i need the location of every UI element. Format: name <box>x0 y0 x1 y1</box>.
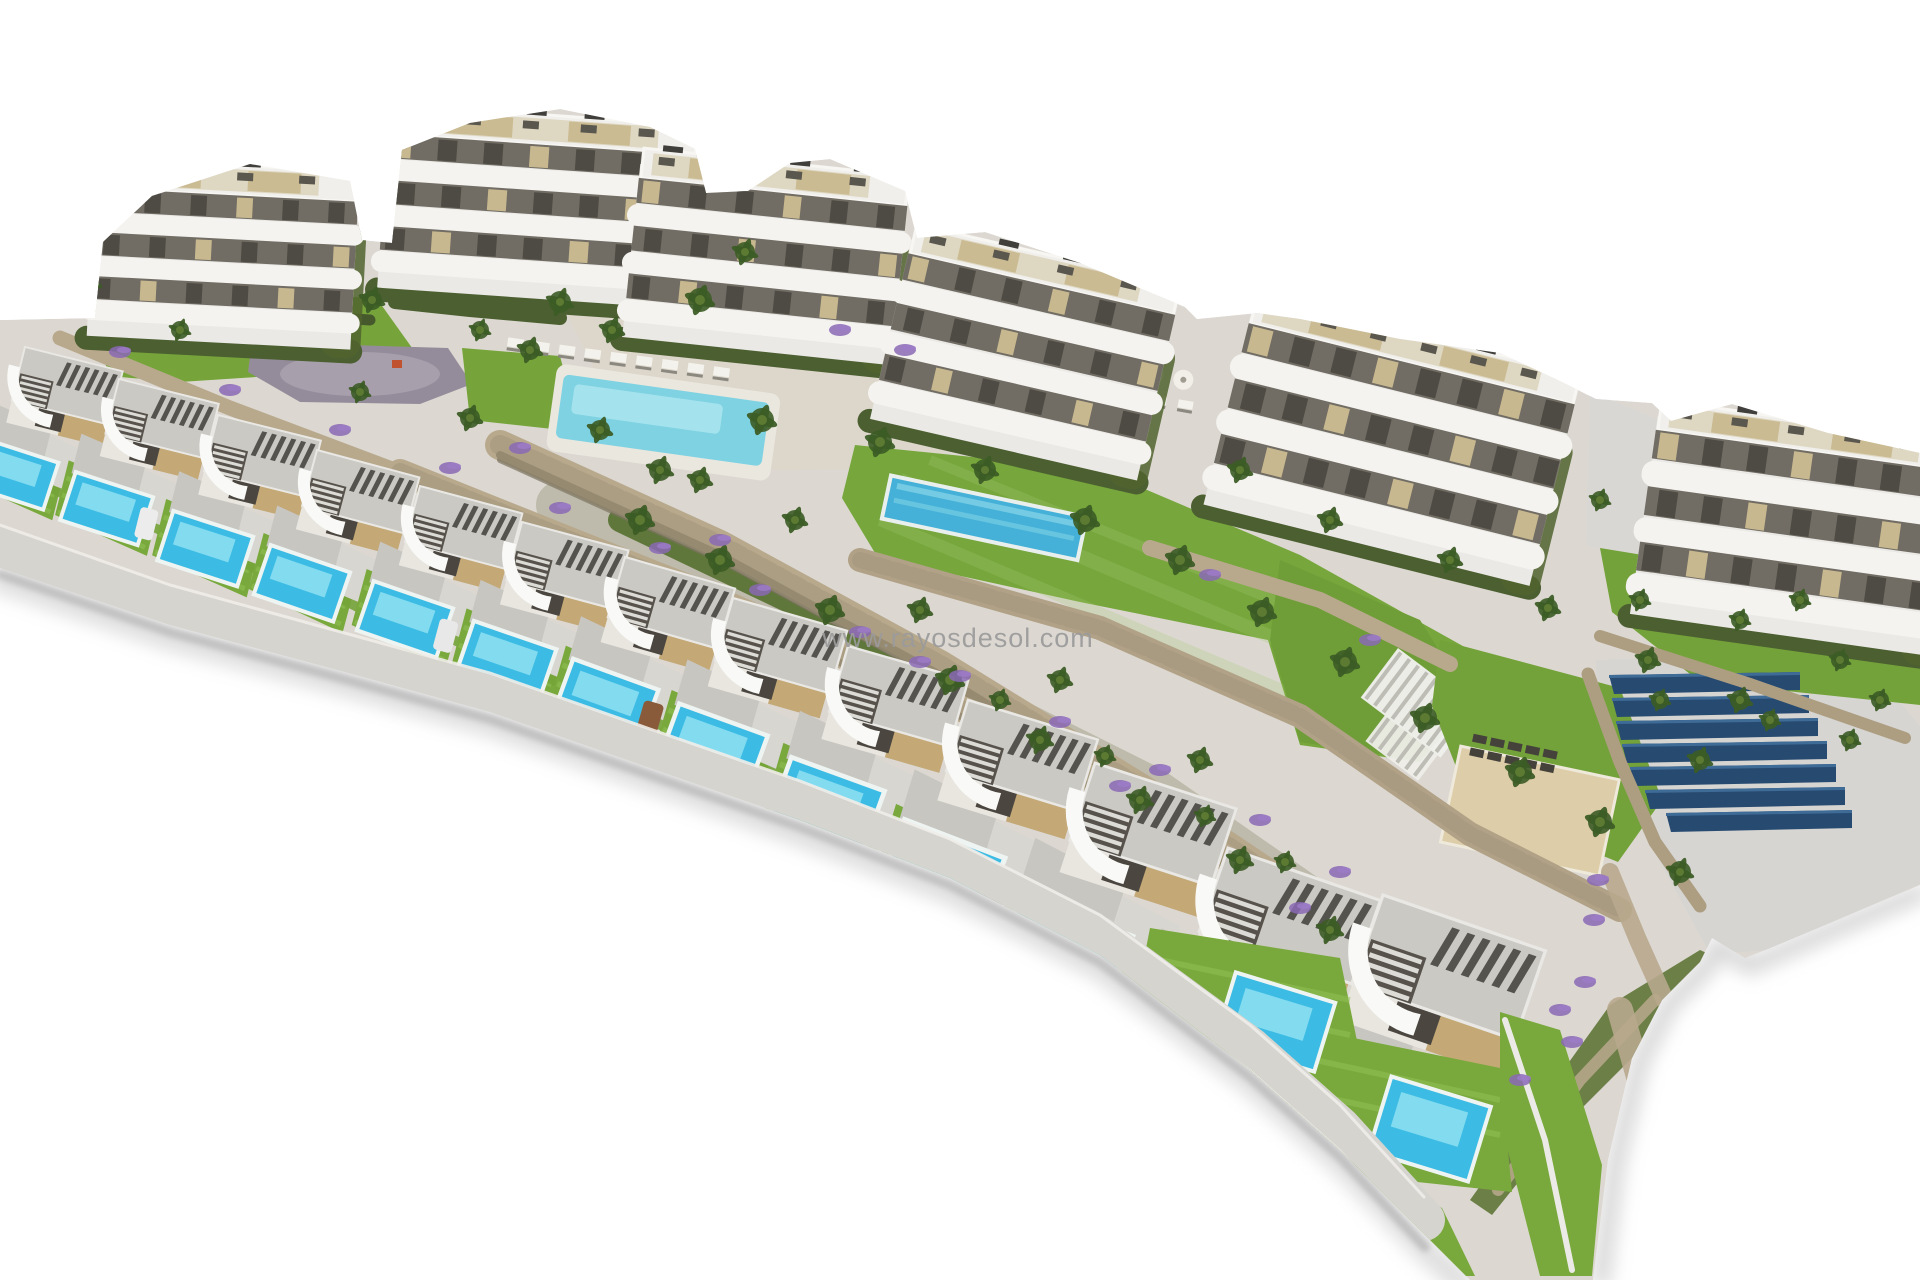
svg-text:www.rayosdesol.com: www.rayosdesol.com <box>821 623 1094 653</box>
